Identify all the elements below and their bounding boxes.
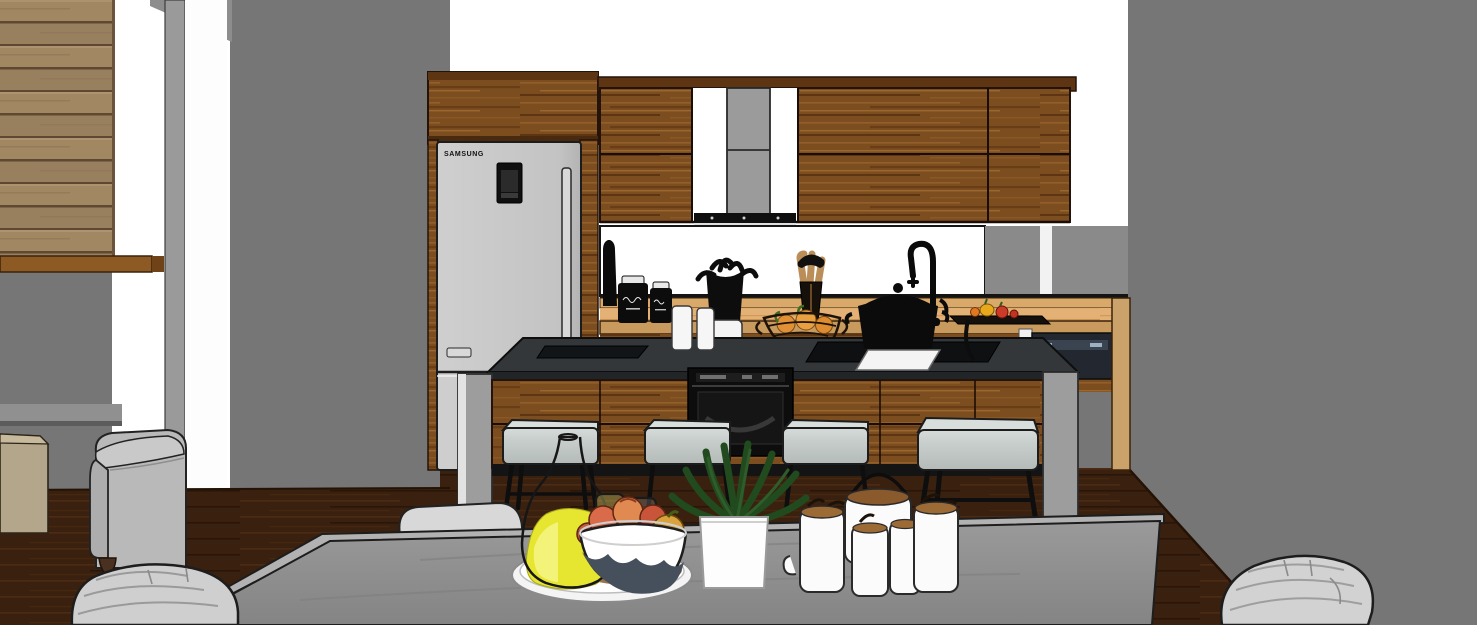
upper-cabinets bbox=[598, 77, 1076, 222]
white-canister-2 bbox=[697, 308, 714, 350]
slat-panel bbox=[0, 0, 114, 256]
fridge-badge bbox=[447, 348, 471, 357]
counter-end-panel bbox=[1112, 298, 1130, 470]
island-end-right bbox=[1043, 372, 1078, 520]
window-edge bbox=[1040, 226, 1052, 296]
hood-chimney bbox=[727, 88, 770, 216]
fridge-brand-label: SAMSUNG bbox=[444, 151, 484, 158]
beige-sideboard bbox=[0, 434, 48, 533]
backsplash-gray-section bbox=[985, 226, 1128, 296]
black-canister-small bbox=[650, 282, 672, 323]
wood-shelf-end bbox=[152, 256, 164, 272]
slat-edge bbox=[112, 0, 115, 256]
white-canister-1 bbox=[672, 306, 692, 350]
backsplash-rail bbox=[600, 294, 1128, 298]
island-sink-cutout bbox=[537, 346, 648, 358]
kitchen-render: SAMSUNG bbox=[0, 0, 1477, 625]
left-ledge bbox=[0, 404, 122, 426]
render-canvas: SAMSUNG bbox=[0, 0, 1477, 625]
wood-shelf bbox=[0, 256, 152, 272]
white-cube-planter bbox=[700, 517, 768, 588]
backsplash-window bbox=[600, 226, 1128, 298]
square-plate bbox=[856, 350, 940, 370]
black-canister-large bbox=[618, 276, 648, 323]
armchair bbox=[90, 430, 186, 574]
fridge-handle-top bbox=[562, 168, 571, 360]
dark-bottle bbox=[603, 240, 617, 306]
